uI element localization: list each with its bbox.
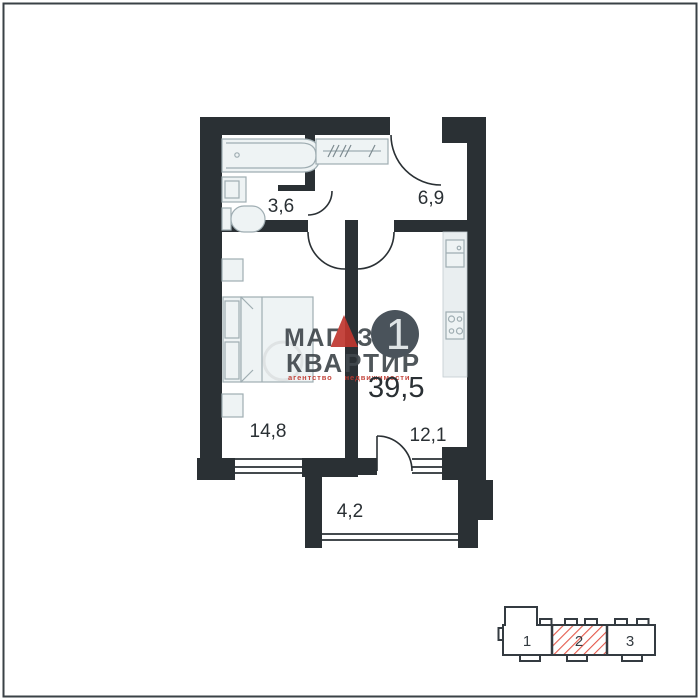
site-section-1-label: 1	[523, 633, 531, 650]
balcony-door-arc	[377, 436, 412, 471]
living-room-area-label: 14,8	[250, 421, 287, 442]
wall-top	[200, 117, 390, 135]
toilet-tank	[222, 208, 231, 230]
doors	[308, 135, 441, 471]
hallway-area-label: 6,9	[418, 188, 444, 209]
room-count-digit: 1	[386, 310, 410, 359]
living-room-door-arc	[308, 232, 345, 269]
kitchen-fixtures	[443, 232, 467, 377]
wall-balcony-left	[305, 470, 322, 548]
wall-hall-bottom-right	[394, 220, 467, 232]
bathtub	[222, 139, 320, 172]
kitchen-window	[412, 459, 442, 473]
stove	[446, 312, 464, 339]
wall-top-right-block	[442, 117, 486, 143]
kitchen-door-arc	[357, 232, 394, 269]
wall-bathroom-partition	[278, 185, 315, 191]
wall-balcony-right-notch	[478, 480, 493, 520]
wall-kitchen-bottom	[358, 458, 377, 475]
nightstand-bottom	[222, 394, 243, 417]
wall-left	[200, 117, 222, 480]
site-plan: 1 2 3	[499, 607, 656, 661]
wall-bottom-left-block	[197, 458, 235, 480]
nightstand-top	[222, 259, 243, 281]
pillow-2	[225, 342, 239, 379]
toilet-bowl	[231, 206, 265, 232]
total-area-label: 39,5	[368, 372, 424, 404]
site-section-2-label: 2	[575, 633, 583, 650]
bathroom-area-label: 3,6	[268, 196, 294, 217]
pillow-1	[225, 301, 239, 338]
kitchen-area-label: 12,1	[410, 425, 447, 446]
hallway-wardrobe	[316, 139, 388, 164]
screenshot-canvas: МАГ ЗИН КВАРТИР агентство недвижимости 1…	[0, 0, 700, 700]
wall-bottom-right-block	[442, 447, 486, 480]
wall-balcony-right	[458, 480, 478, 548]
wall-right	[467, 143, 486, 447]
entrance-door-arc	[391, 135, 441, 185]
balcony-railing	[322, 534, 458, 540]
floor-plan-svg: МАГ ЗИН КВАРТИР агентство недвижимости 1…	[0, 0, 700, 700]
bathroom-door-arc	[308, 191, 332, 215]
living-room-window	[235, 459, 302, 473]
balcony-area-label: 4,2	[337, 501, 363, 522]
site-section-3-label: 3	[626, 633, 634, 650]
